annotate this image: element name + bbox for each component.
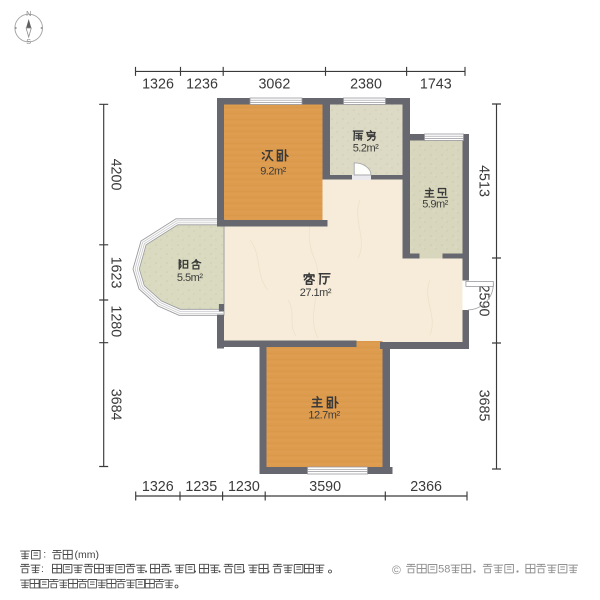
svg-text::: : xyxy=(43,549,46,561)
svg-text:©: © xyxy=(392,563,401,577)
svg-text:3684: 3684 xyxy=(108,389,124,421)
svg-text:27.1m²: 27.1m² xyxy=(300,287,332,299)
svg-text:1280: 1280 xyxy=(108,305,124,337)
svg-text:S: S xyxy=(26,37,31,46)
svg-text::: : xyxy=(41,563,44,575)
svg-text:1743: 1743 xyxy=(420,77,452,93)
svg-text:(mm): (mm) xyxy=(75,549,100,561)
svg-text:3590: 3590 xyxy=(309,479,341,495)
svg-text:N: N xyxy=(26,9,31,18)
svg-text:1326: 1326 xyxy=(142,479,174,495)
svg-text:5.5m²: 5.5m² xyxy=(177,272,203,284)
svg-text:9.2m²: 9.2m² xyxy=(260,166,286,178)
svg-text:4513: 4513 xyxy=(476,165,492,197)
svg-text:2380: 2380 xyxy=(350,77,382,93)
svg-text:1230: 1230 xyxy=(228,479,260,495)
svg-text:12.7m²: 12.7m² xyxy=(308,410,340,422)
svg-text:1235: 1235 xyxy=(185,479,217,495)
svg-text:5.9m²: 5.9m² xyxy=(422,199,448,211)
svg-text:2590: 2590 xyxy=(476,285,492,317)
svg-text:4200: 4200 xyxy=(108,159,124,191)
svg-text:1236: 1236 xyxy=(186,77,218,93)
svg-text:2366: 2366 xyxy=(410,479,442,495)
svg-text:1326: 1326 xyxy=(142,77,174,93)
svg-text:1623: 1623 xyxy=(108,257,124,289)
svg-text:5.2m²: 5.2m² xyxy=(353,143,379,155)
svg-text:58: 58 xyxy=(438,564,450,576)
svg-text:3685: 3685 xyxy=(476,390,492,422)
svg-text:3062: 3062 xyxy=(258,77,290,93)
